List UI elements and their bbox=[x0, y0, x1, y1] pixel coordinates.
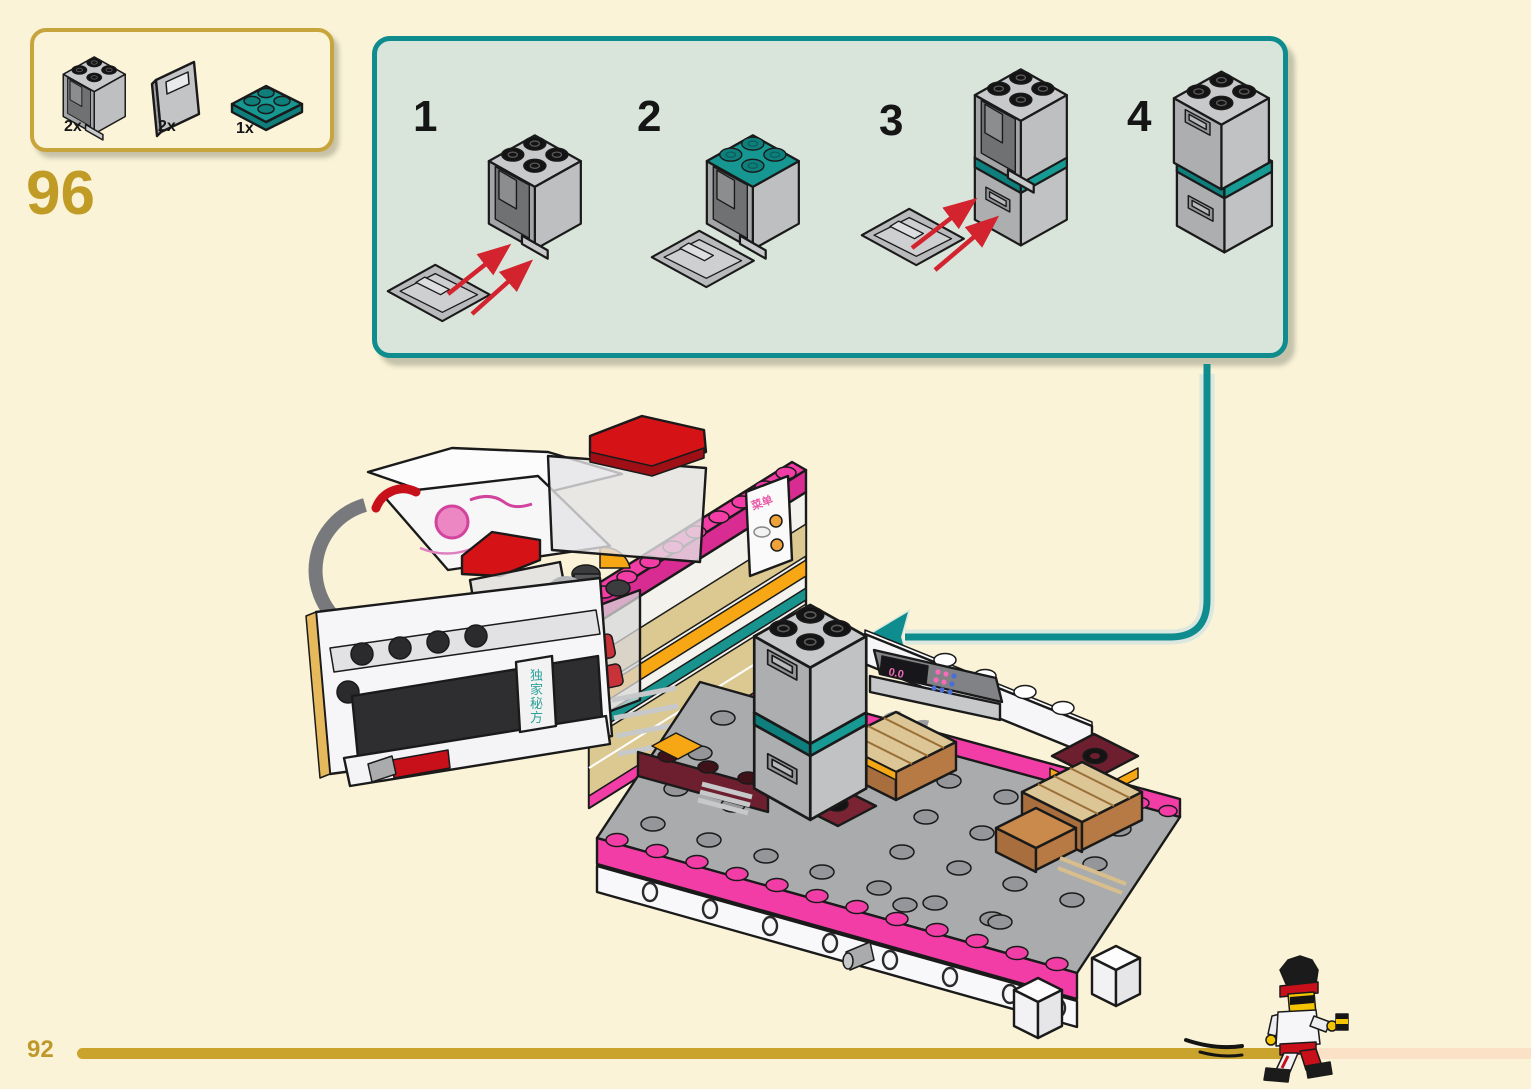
register-display: 0.0 bbox=[887, 666, 904, 681]
substep-label-4: 4 bbox=[1127, 92, 1151, 142]
substeps-panel bbox=[372, 36, 1288, 358]
cab-interior-window bbox=[560, 548, 640, 730]
progress-remaining bbox=[1285, 1048, 1531, 1059]
grille bbox=[352, 656, 602, 758]
cargo-bed: 0.0 bbox=[597, 605, 1180, 1038]
red-roof-arch-2 bbox=[462, 532, 540, 576]
progress-fill bbox=[77, 1048, 1285, 1059]
minifigure bbox=[1264, 956, 1348, 1082]
svg-text:方: 方 bbox=[530, 710, 543, 725]
menu-sign: 菜单 bbox=[746, 476, 792, 576]
substep-label-2: 2 bbox=[637, 92, 661, 142]
front-sign: 独 家 秘 方 bbox=[516, 656, 556, 732]
substep-label-3: 3 bbox=[879, 96, 903, 146]
red-roof-arch bbox=[590, 416, 706, 470]
side-steps bbox=[612, 688, 682, 754]
container-stack bbox=[754, 605, 866, 820]
steering-wheel bbox=[547, 579, 585, 617]
menu-sign-label: 菜单 bbox=[748, 492, 774, 513]
instruction-page: 96 2x 2x 1x 1 2 3 4 92 bbox=[0, 0, 1531, 1089]
truck-model: 菜单 bbox=[306, 416, 1180, 1038]
svg-text:独: 独 bbox=[530, 668, 543, 683]
part-count-plate: 1x bbox=[236, 120, 254, 138]
progress-bar bbox=[0, 1048, 1531, 1059]
tap-piece bbox=[877, 715, 928, 758]
truck-cab: 独 家 秘 方 bbox=[306, 416, 706, 786]
substep-label-1: 1 bbox=[413, 92, 437, 142]
cash-register: 0.0 bbox=[870, 650, 1002, 720]
bed-items bbox=[638, 712, 1142, 929]
axle-pin-front bbox=[368, 756, 396, 782]
sausage-piece bbox=[376, 489, 416, 508]
step-number: 96 bbox=[26, 158, 95, 229]
svg-text:家: 家 bbox=[530, 682, 543, 697]
svg-text:秘: 秘 bbox=[530, 696, 543, 711]
callout-arrow bbox=[866, 364, 1207, 662]
menu-wall: 菜单 bbox=[575, 462, 806, 808]
page-number: 92 bbox=[27, 1036, 54, 1064]
axle-pin-rear bbox=[846, 942, 874, 970]
part-count-container: 2x bbox=[64, 118, 82, 136]
part-count-door: 2x bbox=[158, 118, 176, 136]
headlights bbox=[337, 625, 487, 703]
